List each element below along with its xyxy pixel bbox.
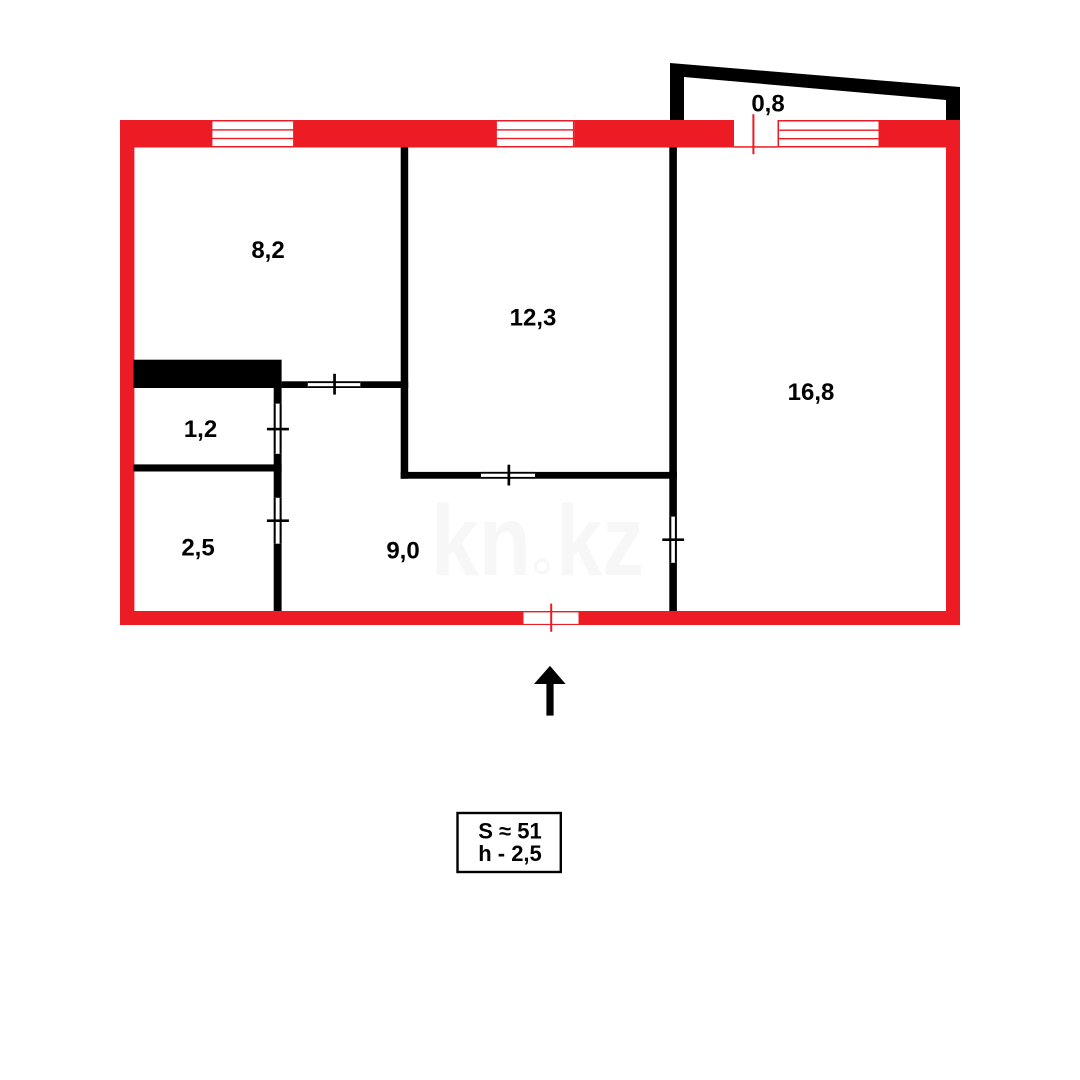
svg-text:S ≈ 51: S ≈ 51 bbox=[478, 818, 541, 843]
svg-text:8,2: 8,2 bbox=[251, 237, 284, 264]
svg-text:1,2: 1,2 bbox=[184, 416, 217, 443]
svg-text:0,8: 0,8 bbox=[751, 90, 784, 117]
svg-text:kz: kz bbox=[556, 485, 644, 597]
svg-text:12,3: 12,3 bbox=[510, 305, 557, 332]
svg-text:2,5: 2,5 bbox=[181, 535, 214, 562]
svg-text:h - 2,5: h - 2,5 bbox=[478, 841, 542, 866]
svg-text:9,0: 9,0 bbox=[386, 537, 419, 564]
svg-text:16,8: 16,8 bbox=[788, 379, 835, 406]
svg-text:kn: kn bbox=[431, 485, 531, 597]
